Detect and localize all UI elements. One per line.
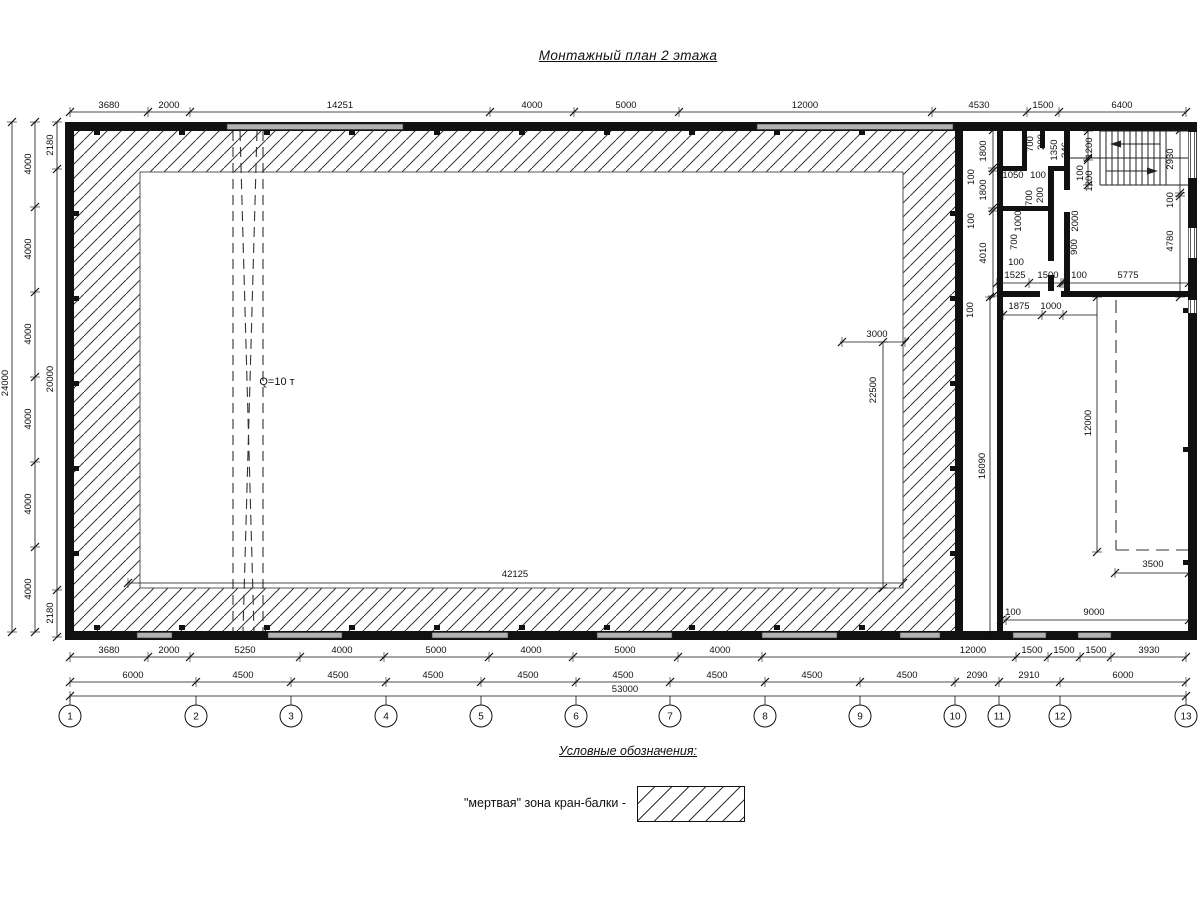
- legend-item-label: "мертвая" зона кран-балки -: [430, 796, 626, 810]
- dim-label: 4500: [232, 670, 253, 681]
- dim-label: 200: [1036, 134, 1047, 150]
- dim-label: 4000: [709, 645, 730, 656]
- dim-label: 20000: [45, 366, 56, 392]
- dim-label: 100: [966, 213, 977, 229]
- dim-label: 2000: [158, 645, 179, 656]
- dim-label: 4000: [23, 493, 34, 514]
- wall-mark: [950, 551, 955, 556]
- dim-label: 24000: [0, 370, 11, 396]
- dim-label: 4000: [331, 645, 352, 656]
- dim-label: 4000: [23, 408, 34, 429]
- axis-bubbles: 12345678910111213: [59, 696, 1197, 727]
- dim-label: 100: [1165, 192, 1176, 208]
- dim-label: 100: [1008, 257, 1024, 268]
- dim-label: 1500: [1021, 645, 1042, 656]
- axis-bubble-number: 7: [667, 712, 673, 723]
- dim-label: 12000: [1083, 410, 1094, 436]
- dim-label: 4000: [23, 153, 34, 174]
- column-mark: [264, 625, 270, 630]
- wall-mark: [1183, 447, 1188, 452]
- floor-plan-svg: 3680200014251400050001200045301500640036…: [0, 0, 1200, 900]
- dim-label: 4000: [520, 645, 541, 656]
- dim-label: 22500: [868, 377, 879, 403]
- dim-label: 1000: [1040, 301, 1061, 312]
- column-mark: [349, 130, 355, 135]
- dim-label: 700: [1025, 136, 1036, 152]
- column-mark: [519, 625, 525, 630]
- dim-label: 100: [1030, 170, 1046, 181]
- axis-bubble-number: 6: [573, 712, 579, 723]
- column-mark: [434, 130, 440, 135]
- dim-label: 16090: [977, 453, 988, 479]
- dim-label: 4010: [978, 242, 989, 263]
- dim-label: 1500: [1085, 645, 1106, 656]
- column-mark: [94, 625, 100, 630]
- stair-arrow-right-icon: [1147, 168, 1158, 175]
- column-mark: [859, 130, 865, 135]
- dim-label: 5000: [425, 645, 446, 656]
- dim-label: 100: [1071, 270, 1087, 281]
- dim-label: 4000: [23, 578, 34, 599]
- crane-dead-zone-hatch: [74, 131, 955, 631]
- dim-label: 3680: [98, 645, 119, 656]
- dim-label: 200: [1035, 187, 1046, 203]
- dim-label: 42125: [502, 569, 528, 580]
- wall-mark: [997, 378, 1002, 383]
- dim-label: 4500: [517, 670, 538, 681]
- column-mark: [94, 130, 100, 135]
- dim-label: 700: [1009, 234, 1020, 250]
- column-mark: [264, 130, 270, 135]
- dim-label: 4000: [23, 238, 34, 259]
- dim-label: 2910: [1018, 670, 1039, 681]
- axis-bubble-number: 12: [1054, 712, 1066, 723]
- dim-label: 5000: [615, 100, 636, 111]
- column-mark: [689, 130, 695, 135]
- dim-label: 100: [965, 302, 976, 318]
- right-wall: [1188, 122, 1197, 640]
- axis-bubble-number: 8: [762, 712, 768, 723]
- dim-label: 1525: [1004, 270, 1025, 281]
- dim-label: 4500: [896, 670, 917, 681]
- dead-zone-hatch-swatch: [637, 786, 745, 822]
- wall-mark: [950, 381, 955, 386]
- dim-label: 1200: [1084, 170, 1095, 191]
- wall-mark: [1183, 560, 1188, 565]
- dim-label: 4500: [801, 670, 822, 681]
- column-mark: [179, 130, 185, 135]
- dim-label: 1500: [1037, 270, 1058, 281]
- column-mark: [604, 625, 610, 630]
- column-mark: [179, 625, 185, 630]
- dim-label: 700: [1024, 190, 1035, 206]
- dim-label: 5000: [614, 645, 635, 656]
- legend-heading: Условные обозначения:: [450, 744, 806, 758]
- dim-label: 1350: [1049, 139, 1060, 160]
- wall-mark: [950, 466, 955, 471]
- column-mark: [519, 130, 525, 135]
- dim-label: 100: [1005, 607, 1021, 618]
- column-mark: [349, 625, 355, 630]
- column-mark: [774, 625, 780, 630]
- dim-label: 14251: [327, 100, 353, 111]
- wall-mark: [74, 466, 79, 471]
- dim-label: 2930: [1165, 148, 1176, 169]
- dim-label: 4000: [23, 323, 34, 344]
- axis-bubble-number: 4: [383, 712, 389, 723]
- wall-mark: [74, 211, 79, 216]
- wall-mark: [74, 381, 79, 386]
- dim-label: 100: [966, 169, 977, 185]
- dim-label: 1200: [1084, 137, 1095, 158]
- column-mark: [604, 130, 610, 135]
- dim-label: 53000: [612, 684, 638, 695]
- axis-bubble-number: 5: [478, 712, 484, 723]
- crane-axis-dashed-right-room: [1116, 300, 1188, 550]
- dim-label: 2090: [966, 670, 987, 681]
- wall-mark: [997, 548, 1002, 553]
- axis-bubble-number: 11: [994, 712, 1005, 723]
- dim-label: 4500: [706, 670, 727, 681]
- floor-plan-page: { "title": "Монтажный план 2 этажа", "le…: [0, 0, 1200, 900]
- axis-bubble-number: 9: [857, 712, 863, 723]
- wall-mark: [997, 463, 1002, 468]
- dim-label: 5250: [234, 645, 255, 656]
- column-mark: [859, 625, 865, 630]
- dim-label: 9000: [1083, 607, 1104, 618]
- dim-label: 12000: [960, 645, 986, 656]
- dim-label: 1800: [978, 179, 989, 200]
- dim-label: 6000: [1112, 670, 1133, 681]
- wall-mark: [74, 296, 79, 301]
- dim-label: 4500: [422, 670, 443, 681]
- dim-label: 2180: [45, 602, 56, 623]
- dim-label: 246: [1060, 142, 1071, 158]
- dim-label: 6000: [122, 670, 143, 681]
- dim-label: 900: [1069, 239, 1080, 255]
- dim-label: Q=10 т: [259, 376, 294, 388]
- dim-label: 4530: [968, 100, 989, 111]
- dim-label: 1800: [978, 140, 989, 161]
- dim-label: 6400: [1111, 100, 1132, 111]
- axis-bubble-number: 13: [1180, 712, 1192, 723]
- column-marks: [74, 130, 1188, 630]
- axis-bubble-number: 3: [288, 712, 294, 723]
- dim-label: 3680: [98, 100, 119, 111]
- dim-label: 1875: [1008, 301, 1029, 312]
- dim-label: 2180: [45, 134, 56, 155]
- dim-label: 2000: [158, 100, 179, 111]
- dim-label: 12000: [792, 100, 818, 111]
- column-mark: [434, 625, 440, 630]
- axis-bubble-number: 10: [949, 712, 961, 723]
- wall-mark: [74, 551, 79, 556]
- dim-label: 3000: [866, 329, 887, 340]
- dim-label: 5775: [1117, 270, 1138, 281]
- axis-bubble-number: 1: [67, 712, 73, 723]
- legend-row: "мертвая" зона кран-балки -: [430, 786, 930, 824]
- dim-label: 1500: [1053, 645, 1074, 656]
- dim-label: 4500: [327, 670, 348, 681]
- dim-label: 4000: [521, 100, 542, 111]
- wall-mark: [1183, 308, 1188, 313]
- column-mark: [689, 625, 695, 630]
- dim-label: 3930: [1138, 645, 1159, 656]
- dim-label: 3500: [1142, 559, 1163, 570]
- dim-label: 4780: [1165, 230, 1176, 251]
- dim-label: 1000: [1013, 210, 1024, 231]
- axis-bubble-number: 2: [193, 712, 199, 723]
- dim-label: 2000: [1070, 210, 1081, 231]
- wall-mark: [950, 211, 955, 216]
- left-wall: [65, 122, 74, 640]
- dim-label: 1500: [1032, 100, 1053, 111]
- page-title: Монтажный план 2 этажа: [400, 48, 856, 63]
- wall-mark: [950, 296, 955, 301]
- dim-label: 1050: [1002, 170, 1023, 181]
- axis10-wall: [955, 122, 963, 640]
- column-mark: [774, 130, 780, 135]
- dim-label: 4500: [612, 670, 633, 681]
